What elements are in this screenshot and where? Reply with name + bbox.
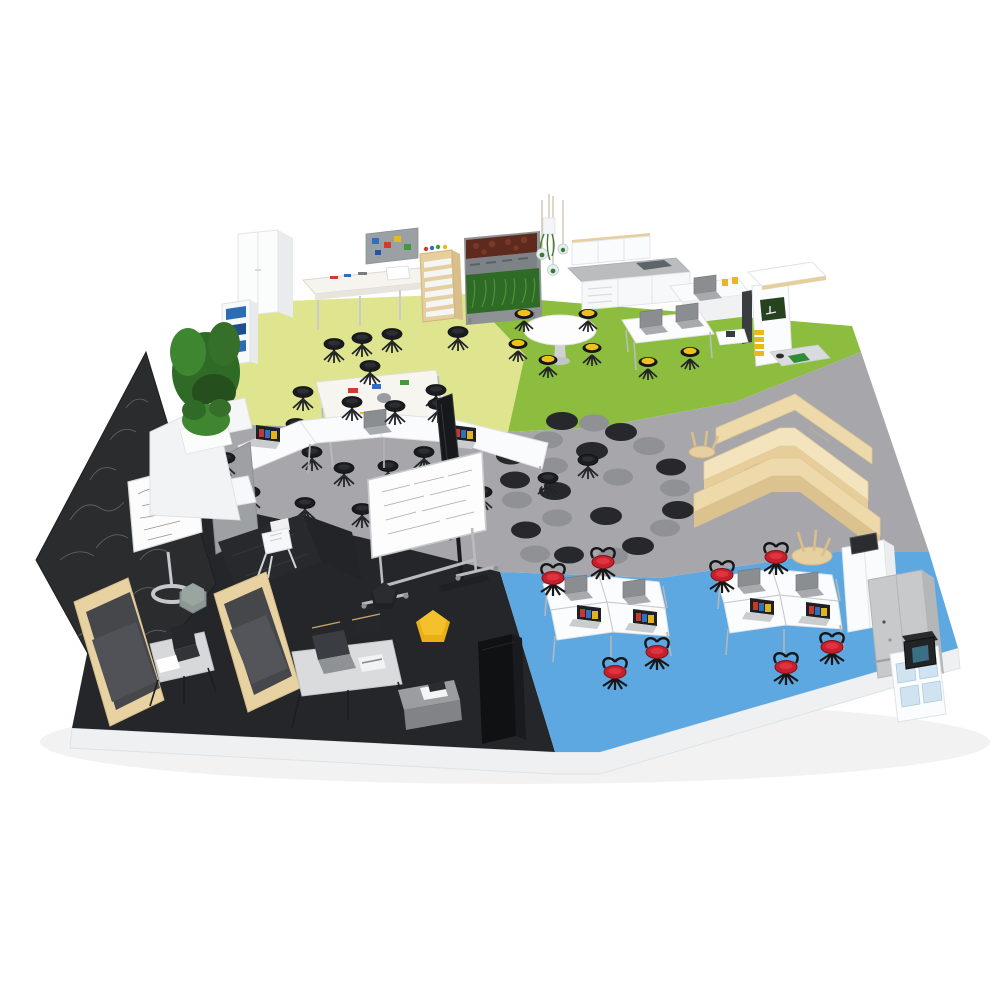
kitchen-counter [568,258,690,310]
tote-tray-trolley [420,245,463,322]
wall-cabinet [572,233,650,265]
tall-black-cabinet [478,634,526,744]
demo-station [742,262,830,366]
isometric-learning-space-render [0,0,1000,1000]
printer-3d [902,631,938,669]
hanging-glass-planters [537,194,569,276]
mobile-pod-table [716,329,748,345]
scene-canvas [0,0,1000,1000]
